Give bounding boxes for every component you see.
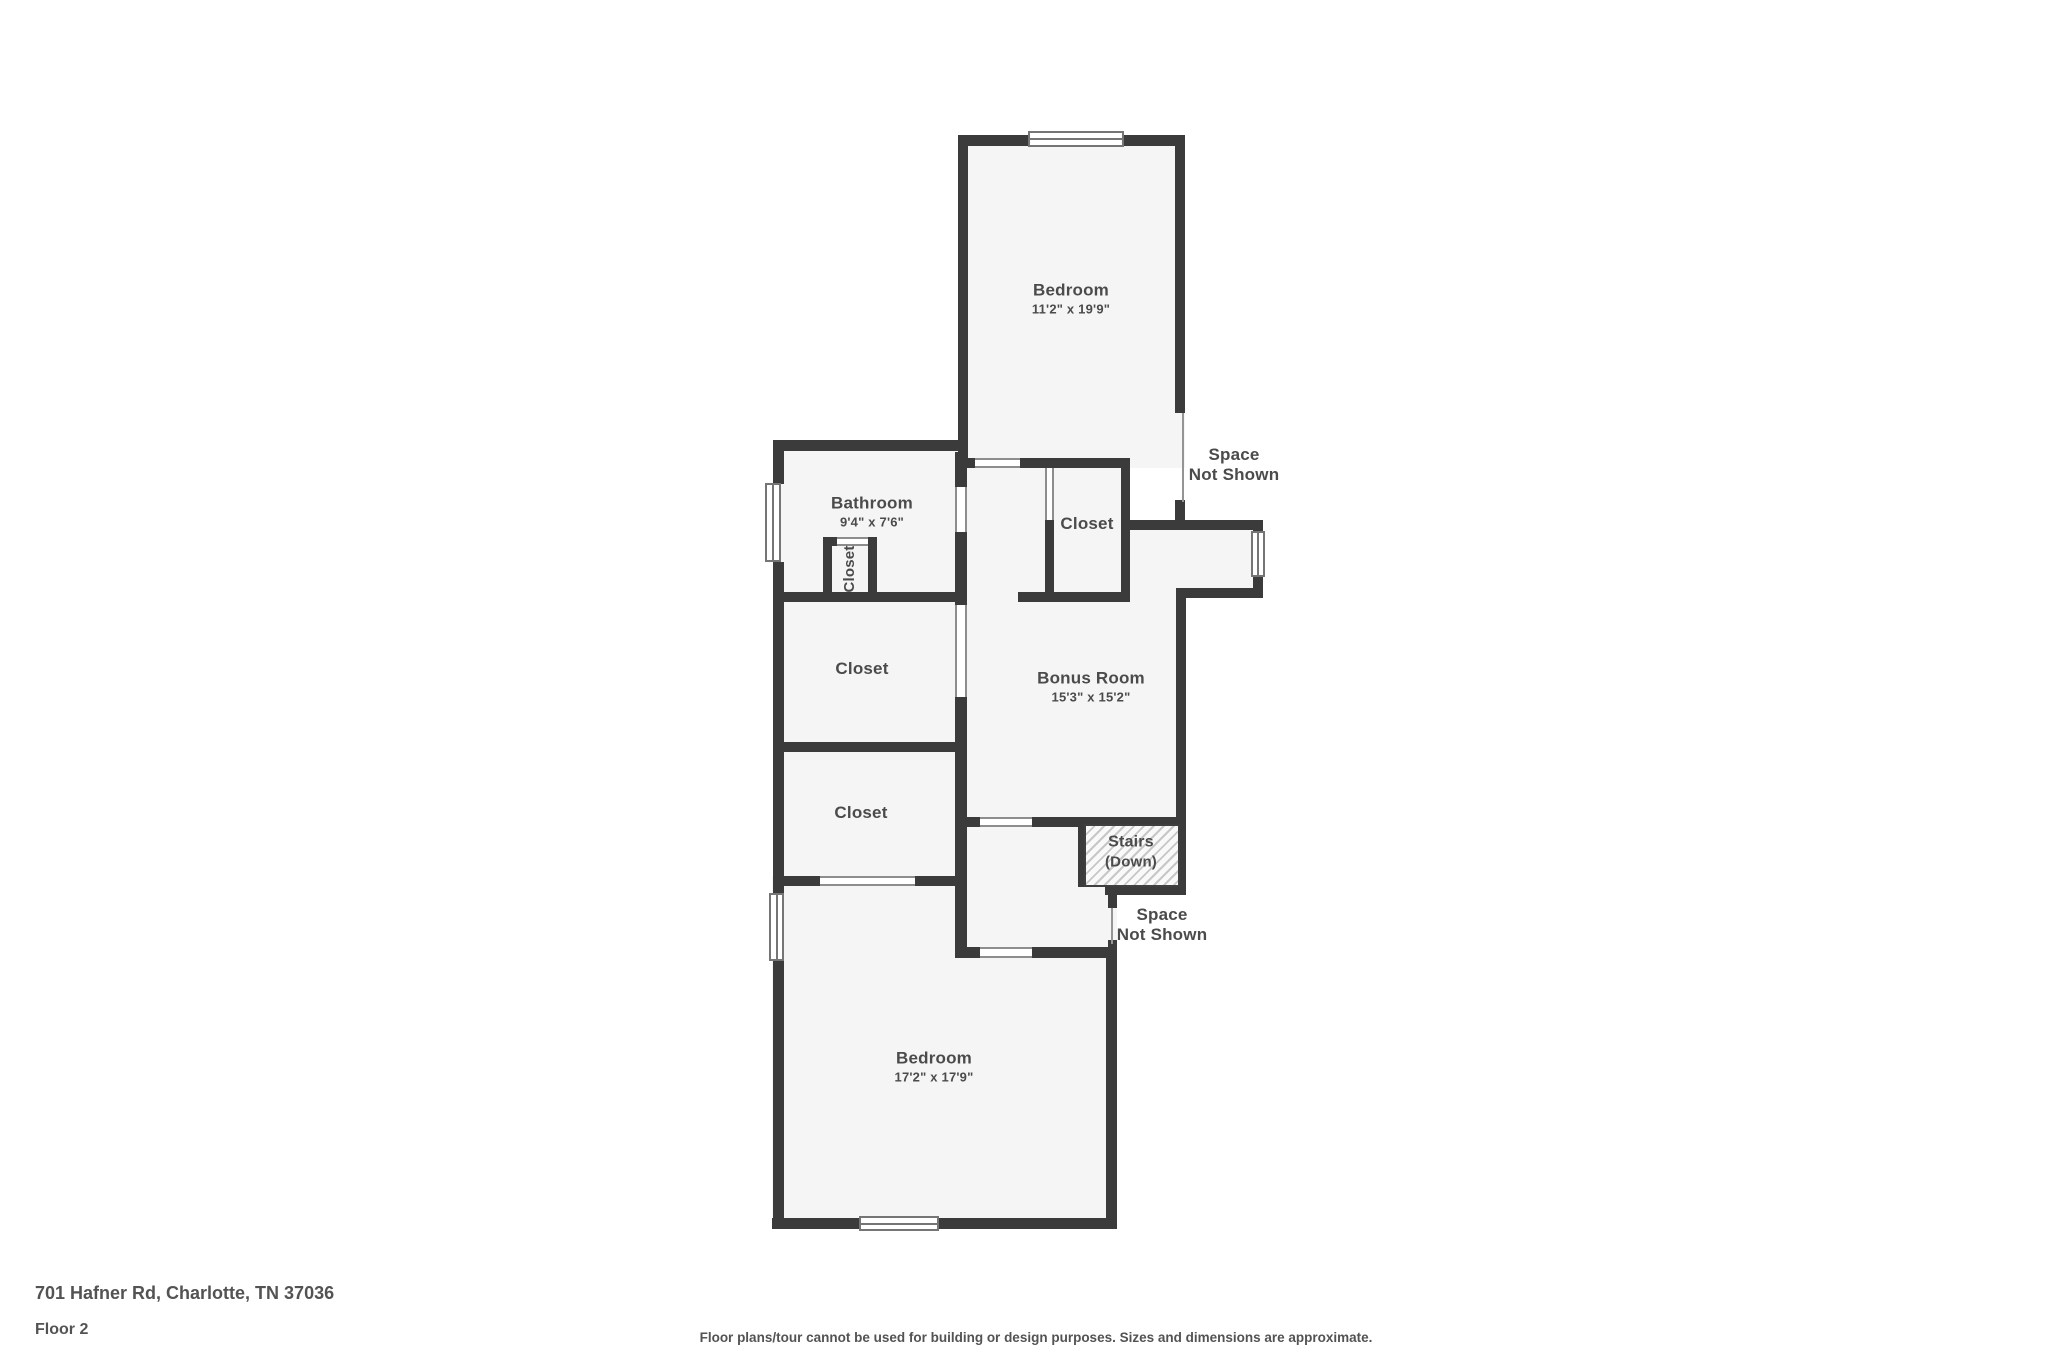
room-label-bonus-room: Bonus Room 15'3" x 15'2" [1037,669,1145,706]
wall [958,947,980,958]
door-opening [955,487,967,532]
wall [1045,520,1054,595]
door-opening [980,947,1032,958]
wall [958,135,968,468]
floor-label: Floor 2 [35,1321,88,1339]
wall [1018,592,1130,602]
room-name: Closet [1060,514,1113,534]
window [765,483,781,562]
wall [1032,947,1117,958]
annotation-line: Not Shown [1117,925,1208,945]
door-opening [955,605,967,697]
room-label-closet-right: Closet [1060,514,1113,534]
door-opening [1045,468,1054,520]
wall [773,592,965,602]
room-name: Bonus Room [1037,669,1145,689]
room-name: Stairs [1105,833,1157,853]
room-label-closet-low: Closet [834,803,887,823]
wall [773,961,784,1229]
door-opening [820,876,915,886]
window [1028,131,1124,147]
wall [1175,135,1185,413]
space-boundary-line [1182,413,1184,502]
wall [773,440,784,484]
window [859,1216,939,1231]
wall [773,440,968,451]
wall [1175,500,1185,522]
wall [955,452,967,487]
room-label-stairs: Stairs (Down) [1105,833,1157,872]
room-floor-hallway [1128,520,1263,598]
window [1251,531,1265,577]
disclaimer-text: Floor plans/tour cannot be used for buil… [700,1330,1373,1345]
property-address: 701 Hafner Rd, Charlotte, TN 37036 [35,1283,334,1304]
room-label-bedroom-top: Bedroom 11'2" x 19'9" [1032,281,1110,318]
annotation-line: Space [1189,445,1280,465]
annotation-space-not-shown-lower: Space Not Shown [1117,905,1208,945]
space-boundary-line [1111,908,1113,944]
wall [773,562,784,886]
wall [1176,588,1263,598]
stairs-direction: (Down) [1105,853,1157,872]
room-dims: 17'2" x 17'9" [895,1069,974,1086]
wall [938,1218,1117,1229]
wall [1108,895,1117,908]
room-dims: 11'2" x 19'9" [1032,301,1110,318]
room-label-closet-mid: Closet [835,659,888,679]
room-label-bedroom-low: Bedroom 17'2" x 17'9" [895,1049,974,1086]
wall [1121,468,1130,595]
room-label-bathroom: Bathroom 9'4" x 7'6" [831,494,913,531]
annotation-space-not-shown-upper: Space Not Shown [1189,445,1280,485]
wall [1128,520,1263,530]
wall [915,876,965,886]
door-opening [975,458,1020,468]
room-name: Closet [835,659,888,679]
room-label-closet-bathroom: Closet [840,545,860,592]
annotation-line: Space [1117,905,1208,925]
wall [1020,458,1130,468]
room-name: Closet [840,545,860,592]
door-opening [980,817,1032,827]
wall [955,817,980,827]
room-dims: 9'4" x 7'6" [831,514,913,531]
room-dims: 15'3" x 15'2" [1037,689,1145,706]
room-name: Bathroom [831,494,913,514]
wall [1106,958,1117,1229]
room-name: Bedroom [895,1049,974,1069]
wall [773,742,965,752]
room-name: Closet [834,803,887,823]
window [769,893,784,961]
wall [955,697,967,958]
wall [823,537,832,592]
floor-plan: Bedroom 11'2" x 19'9" Bathroom 9'4" x 7'… [0,0,2048,1365]
annotation-line: Not Shown [1189,465,1280,485]
room-name: Bedroom [1032,281,1110,301]
wall [868,537,877,592]
wall [772,1218,860,1229]
